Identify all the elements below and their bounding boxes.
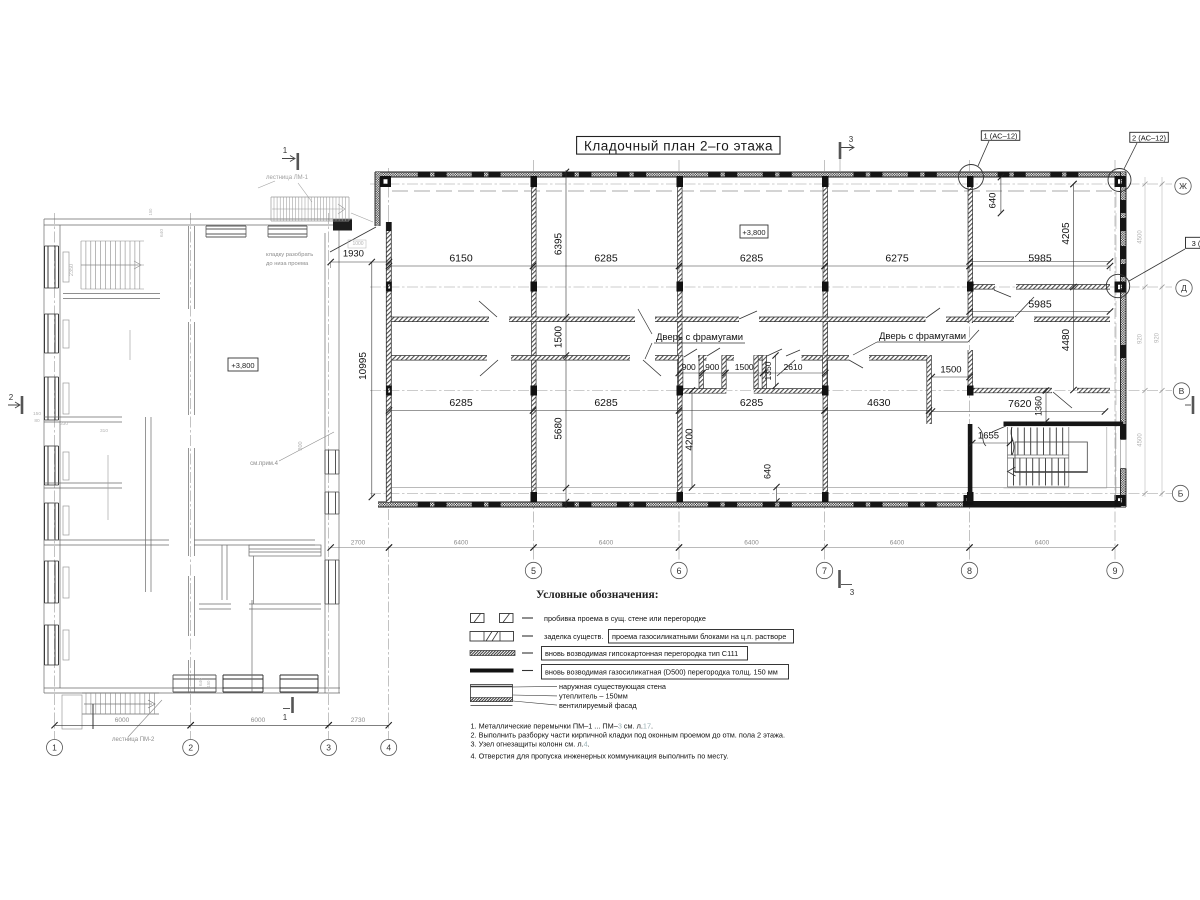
svg-text:6150: 6150	[449, 253, 473, 265]
svg-text:4500: 4500	[1138, 230, 1144, 244]
svg-text:6400: 6400	[454, 540, 469, 547]
svg-text:920: 920	[1155, 332, 1161, 343]
svg-text:Кладочный план 2–го этажа: Кладочный план 2–го этажа	[584, 139, 773, 154]
svg-text:150: 150	[206, 680, 211, 688]
svg-text:3 (: 3 (	[1192, 239, 1200, 248]
svg-text:6400: 6400	[599, 540, 614, 547]
svg-text:вновь возводимая газосиликатна: вновь возводимая газосиликатная (D500) п…	[545, 668, 778, 677]
svg-text:3. Узел огнезащиты колонн см.: 3. Узел огнезащиты колонн см. л.4.	[471, 740, 590, 749]
svg-text:1000: 1000	[352, 241, 363, 247]
svg-text:4500: 4500	[1138, 433, 1144, 447]
svg-text:1: 1	[52, 743, 57, 753]
svg-text:4: 4	[386, 743, 391, 753]
svg-text:4480: 4480	[1061, 328, 1072, 351]
svg-text:1500: 1500	[554, 325, 565, 348]
svg-text:920: 920	[1138, 333, 1144, 344]
svg-text:1 (АС–12): 1 (АС–12)	[983, 132, 1018, 141]
svg-text:1. Металлические перемычки П: 1. Металлические перемычки ПМ–1 ... ПМ–3…	[471, 722, 654, 731]
svg-text:2730: 2730	[351, 717, 366, 724]
svg-text:1350: 1350	[763, 361, 773, 380]
svg-text:6000: 6000	[251, 717, 266, 724]
svg-text:150: 150	[33, 411, 41, 417]
svg-text:1500: 1500	[735, 362, 754, 372]
svg-text:6275: 6275	[885, 253, 909, 265]
svg-text:7: 7	[822, 566, 827, 576]
svg-text:до низа проема: до низа проема	[266, 261, 309, 267]
svg-text:4205: 4205	[1061, 222, 1072, 245]
svg-text:см.прим.4: см.прим.4	[250, 461, 279, 467]
svg-text:наружная существующая стена: наружная существующая стена	[559, 682, 667, 691]
svg-text:4200: 4200	[685, 428, 696, 451]
svg-text:6400: 6400	[890, 540, 905, 547]
svg-text:640: 640	[763, 464, 773, 479]
svg-text:пробивка проема в сущ. стене: пробивка проема в сущ. стене или перегор…	[544, 614, 706, 623]
svg-text:2610: 2610	[784, 362, 803, 372]
svg-text:вновь возводимая гипсокартонна: вновь возводимая гипсокартонная перегоро…	[545, 649, 738, 658]
svg-text:лестница ЛМ-1: лестница ЛМ-1	[266, 175, 309, 181]
svg-text:утеплитель – 150мм: утеплитель – 150мм	[559, 692, 628, 701]
svg-text:6000: 6000	[115, 717, 130, 724]
svg-text:+3,800: +3,800	[231, 361, 254, 370]
svg-text:2700: 2700	[351, 540, 366, 547]
svg-text:кладку разобрать: кладку разобрать	[266, 252, 313, 258]
svg-text:6285: 6285	[594, 253, 618, 265]
svg-text:2. Выполнить разборку части ки: 2. Выполнить разборку части кирпичной кл…	[471, 731, 786, 740]
svg-text:6395: 6395	[554, 232, 565, 255]
svg-text:640: 640	[198, 678, 204, 686]
svg-text:Ж: Ж	[1179, 181, 1187, 191]
svg-text:проема газосиликатными блоками: проема газосиликатными блоками на ц.п. р…	[612, 632, 786, 641]
svg-text:1655: 1655	[978, 431, 999, 442]
svg-text:150: 150	[148, 208, 153, 216]
svg-text:10995: 10995	[358, 352, 369, 380]
svg-text:6285: 6285	[594, 397, 618, 409]
svg-text:900: 900	[705, 362, 719, 372]
svg-text:2 (АС–12): 2 (АС–12)	[1132, 133, 1167, 142]
svg-text:9: 9	[1112, 566, 1117, 576]
svg-text:Д: Д	[1181, 283, 1187, 293]
svg-text:80: 80	[34, 418, 40, 424]
svg-text:заделка существ.: заделка существ.	[544, 632, 603, 641]
svg-text:1: 1	[283, 713, 288, 722]
svg-text:800: 800	[298, 441, 304, 450]
svg-text:6285: 6285	[740, 253, 764, 265]
svg-text:330: 330	[60, 421, 68, 427]
svg-text:В: В	[1179, 386, 1185, 396]
svg-text:Дверь с фрамугами: Дверь с фрамугами	[656, 332, 743, 343]
svg-text:6285: 6285	[449, 397, 473, 409]
svg-text:3: 3	[326, 743, 331, 753]
svg-text:640: 640	[988, 193, 999, 209]
svg-text:1360: 1360	[1034, 396, 1044, 416]
svg-text:+3,800: +3,800	[742, 228, 765, 237]
svg-text:5680: 5680	[554, 417, 565, 440]
svg-text:6285: 6285	[740, 397, 764, 409]
svg-text:2: 2	[9, 393, 14, 402]
svg-text:6: 6	[676, 566, 681, 576]
svg-text:вентилируемый фасад: вентилируемый фасад	[559, 701, 637, 710]
svg-text:900: 900	[682, 362, 696, 372]
svg-text:6400: 6400	[744, 540, 759, 547]
svg-text:6400: 6400	[1035, 540, 1050, 547]
svg-text:310: 310	[100, 428, 108, 434]
svg-text:5985: 5985	[1028, 299, 1052, 311]
svg-text:7620: 7620	[1008, 398, 1032, 410]
svg-text:Условные обозначения:: Условные обозначения:	[536, 589, 659, 601]
svg-text:3: 3	[850, 588, 855, 597]
svg-text:лестница ПМ-2: лестница ПМ-2	[112, 737, 155, 743]
svg-text:1: 1	[283, 146, 288, 155]
svg-text:2: 2	[188, 743, 193, 753]
svg-text:5: 5	[531, 566, 536, 576]
svg-text:Б: Б	[1178, 489, 1184, 499]
svg-text:4. Отверстия для пропуска инже: 4. Отверстия для пропуска инженерных ком…	[471, 752, 729, 761]
svg-text:1930: 1930	[343, 249, 364, 260]
svg-text:1500: 1500	[940, 365, 961, 376]
svg-text:4630: 4630	[867, 397, 891, 409]
svg-text:8: 8	[967, 566, 972, 576]
svg-text:3: 3	[849, 135, 854, 144]
svg-text:2350: 2350	[69, 264, 75, 276]
svg-text:Дверь с фрамугами: Дверь с фрамугами	[879, 331, 966, 342]
svg-text:640: 640	[159, 229, 165, 237]
svg-text:5985: 5985	[1028, 253, 1052, 265]
